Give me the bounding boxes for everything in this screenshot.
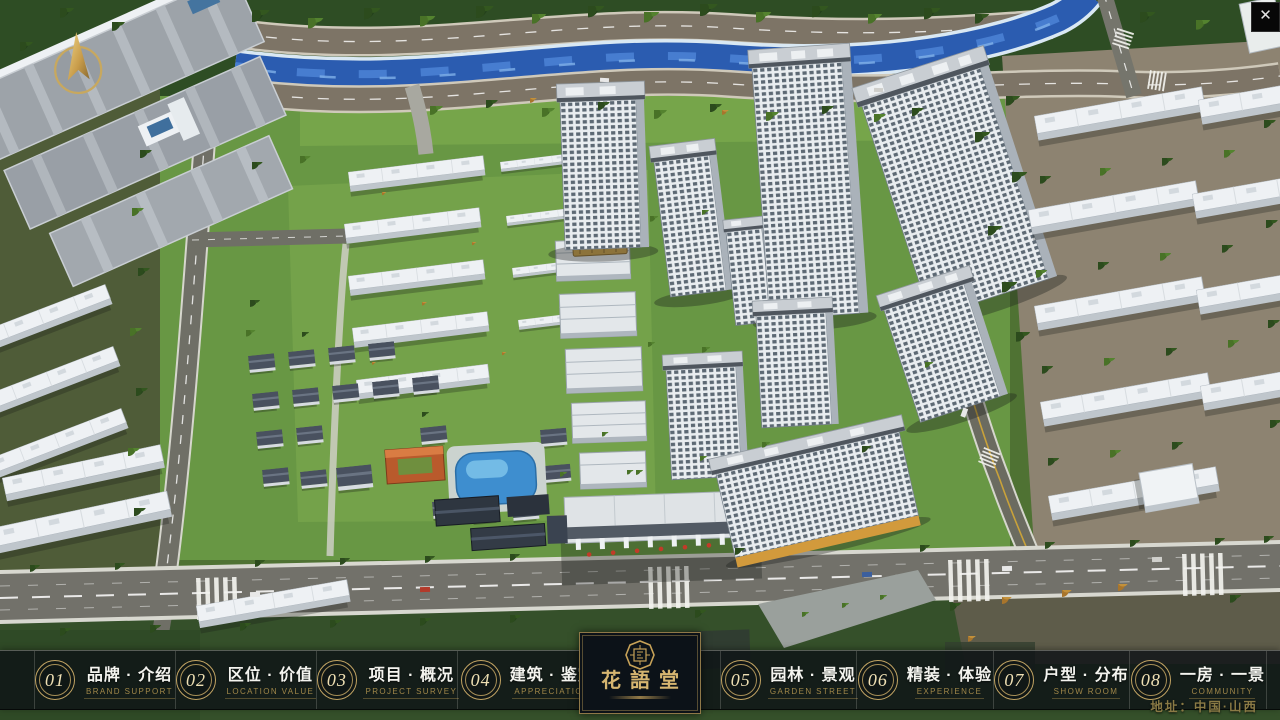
menu-item-number-badge: 05 bbox=[721, 660, 761, 700]
menu-item-number: 01 bbox=[45, 670, 65, 691]
close-icon: ✕ bbox=[1259, 7, 1272, 24]
orange-clubhouse bbox=[385, 446, 445, 484]
menu-item-floorplans[interactable]: 07 户型 · 分布SHOW ROOM bbox=[993, 651, 1129, 709]
menu-item-brand-intro[interactable]: 01 品牌 · 介绍BRAND SUPPORT bbox=[34, 651, 175, 709]
project-logo-title: 花語堂 bbox=[601, 671, 688, 691]
menu-item-number: 05 bbox=[731, 670, 751, 691]
menu-item-number-badge: 04 bbox=[461, 660, 501, 700]
project-address: 地址：中国·山西 bbox=[1150, 696, 1258, 715]
menu-item-number-badge: 03 bbox=[317, 660, 357, 700]
menu-item-label: 户型 · 分布 bbox=[1043, 661, 1128, 685]
menu-item-label: 项目 · 概况 bbox=[369, 661, 454, 685]
project-logo-panel[interactable]: 花語堂 bbox=[579, 632, 701, 714]
close-button[interactable]: ✕ bbox=[1251, 2, 1280, 32]
menu-item-number-badge: 07 bbox=[994, 660, 1034, 700]
menu-item-project-overview[interactable]: 03 项目 · 概况PROJECT SURVEY bbox=[316, 651, 457, 709]
menu-item-label: 品牌 · 介绍 bbox=[87, 661, 172, 685]
menu-item-label: 精装 · 体验 bbox=[907, 661, 992, 685]
menu-item-number-badge: 08 bbox=[1131, 660, 1171, 700]
menu-item-landscape[interactable]: 05 园林 · 景观GARDEN STREET bbox=[720, 651, 856, 709]
menu-item-number: 06 bbox=[868, 670, 888, 691]
menu-item-number-badge: 02 bbox=[176, 660, 216, 700]
site-plan-3d-view[interactable] bbox=[0, 0, 1280, 720]
menu-item-decor-experience[interactable]: 06 精装 · 体验EXPERIENCE bbox=[856, 651, 992, 709]
menu-item-number: 07 bbox=[1004, 670, 1024, 691]
menu-item-number-badge: 01 bbox=[35, 660, 75, 700]
menu-item-number: 04 bbox=[471, 670, 491, 691]
menu-item-label: 园林 · 景观 bbox=[770, 661, 855, 685]
menu-item-sublabel: BRAND SUPPORT bbox=[84, 687, 175, 699]
menu-item-location-value[interactable]: 02 区位 · 价值LOCATION VALUE bbox=[175, 651, 316, 709]
menu-item-number-badge: 06 bbox=[858, 660, 898, 700]
menu-item-number: 03 bbox=[327, 670, 347, 691]
menu-item-sublabel: GARDEN STREET bbox=[768, 687, 858, 699]
menu-item-sublabel: LOCATION VALUE bbox=[225, 687, 317, 699]
seal-emblem-icon bbox=[625, 640, 655, 670]
menu-item-sublabel: PROJECT SURVEY bbox=[363, 687, 459, 699]
logo-subtext-rule bbox=[609, 696, 671, 699]
menu-item-label: 区位 · 价值 bbox=[228, 661, 313, 685]
menu-item-sublabel: SHOW ROOM bbox=[1052, 687, 1121, 699]
nav-left-group: 01 品牌 · 介绍BRAND SUPPORT 02 区位 · 价值LOCATI… bbox=[0, 651, 598, 709]
menu-item-number: 08 bbox=[1141, 670, 1161, 691]
menu-item-label: 一房 · 一景 bbox=[1180, 661, 1265, 685]
menu-item-sublabel: EXPERIENCE bbox=[915, 687, 985, 699]
menu-item-number: 02 bbox=[186, 670, 206, 691]
menu-item-architecture[interactable]: 04 建筑 · 鉴赏APPRECIATION bbox=[457, 651, 598, 709]
